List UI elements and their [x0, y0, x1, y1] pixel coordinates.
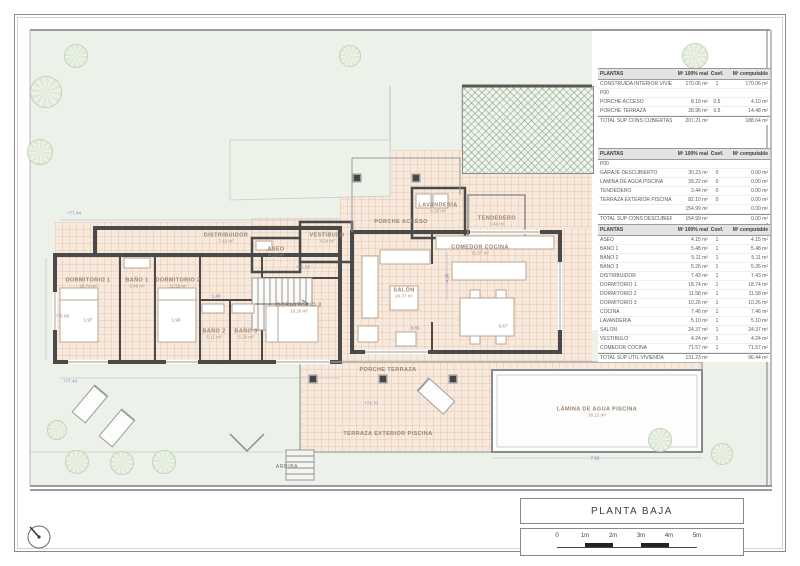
- row-name: TERRAZA EXTERIOR PISCINA: [600, 197, 672, 203]
- table-title: PLANTAS: [600, 71, 672, 77]
- tree-icon: [648, 428, 672, 452]
- row-name: ASEO: [600, 237, 672, 243]
- row-comp: 0.00 m²: [726, 206, 768, 212]
- row-coef: 1: [708, 237, 726, 243]
- col-header-coef: Coef.: [708, 227, 726, 233]
- room-area: 18.74 m²: [65, 284, 110, 289]
- row-comp: 7.43 m²: [726, 273, 768, 279]
- row-coef: 1: [708, 246, 726, 252]
- room-area: 4.15 m²: [267, 253, 284, 258]
- row-coef: [708, 355, 726, 361]
- row-comp: 5.26 m²: [726, 264, 768, 270]
- tree-icon: [711, 443, 733, 465]
- row-real: 82.10 m²: [672, 197, 708, 203]
- row-comp: 0.00 m²: [726, 216, 768, 222]
- table-row: DORMITORIO 3 10.26 m² 1 10.26 m²: [598, 299, 770, 308]
- col-header-real: M² 100% real: [672, 151, 708, 157]
- row-real: 5.10 m²: [672, 318, 708, 324]
- row-comp: 170.06 m²: [726, 81, 768, 87]
- row-name: TOTAL SUP ÚTIL VIVIENDA: [600, 355, 672, 361]
- hatched-planting-area: [462, 86, 594, 174]
- table-row: VESTÍBULO 4.24 m² 1 4.24 m²: [598, 335, 770, 344]
- row-name: COMEDOR COCINA: [600, 345, 672, 351]
- drawing-sheet: DORMITORIO 1 18.74 m² BAÑO 1 5.48 m² DOR…: [0, 0, 800, 566]
- scale-tick-label: 1m: [571, 533, 599, 539]
- paved-terrace-pool: [300, 362, 702, 452]
- tree-icon: [110, 451, 134, 475]
- room-area: 5.10 m²: [418, 209, 457, 214]
- table-row: BAÑO 3 5.26 m² 1 5.26 m²: [598, 263, 770, 272]
- table-row: BAÑO 2 5.11 m² 1 5.11 m²: [598, 254, 770, 263]
- room-name: PORCHE TERRAZA: [360, 367, 417, 373]
- annotation-text: 1.90: [172, 318, 181, 323]
- row-real: 10.26 m²: [672, 300, 708, 306]
- room-label: LÁMINA DE AGUA PISCINA 39.22 m²: [557, 407, 637, 418]
- row-comp: 11.58 m²: [726, 291, 768, 297]
- annotation-text: 7.82: [591, 456, 600, 461]
- row-name: PORCHE TERRAZA: [600, 108, 672, 114]
- row-real: 170.06 m²: [672, 81, 708, 87]
- room-area: 10.26 m²: [276, 309, 321, 314]
- room-area: 5.48 m²: [125, 284, 148, 289]
- row-name: COCINA: [600, 309, 672, 315]
- row-comp: 7.46 m²: [726, 309, 768, 315]
- row-real: 24.37 m²: [672, 327, 708, 333]
- room-area: 3.44 m²: [478, 222, 516, 227]
- row-name: DORMITORIO 2: [600, 291, 672, 297]
- area-table-cubiertas: PLANTAS M² 100% real Coef. M² computable…: [598, 68, 770, 125]
- row-name: BAÑO 2: [600, 255, 672, 261]
- scale-bar: [557, 543, 697, 548]
- area-table-descubiertas: PLANTAS M² 100% real Coef. M² computable…: [598, 148, 770, 223]
- row-name: TOTAL SUP CONS CUBIERTAS: [600, 118, 672, 124]
- row-name: DORMITORIO 1: [600, 282, 672, 288]
- row-coef: [708, 90, 726, 96]
- room-label: SALÓN 24.37 m²: [393, 288, 414, 299]
- row-coef: [708, 206, 726, 212]
- room-label: VESTÍBULO 4.24 m²: [309, 233, 344, 244]
- table-row: COCINA 7.46 m² 1 7.46 m²: [598, 308, 770, 317]
- row-coef: 1: [708, 327, 726, 333]
- row-real: [672, 161, 708, 167]
- row-name: P00: [600, 161, 672, 167]
- table-row: PORCHE TERRAZA 28.96 m² 0.5 14.48 m²: [598, 107, 770, 116]
- table-row: COMEDOR COCINA 71.57 m² 1 71.57 m²: [598, 344, 770, 353]
- row-name: LÁMINA DE AGUA PISCINA: [600, 179, 672, 185]
- row-coef: 0: [708, 170, 726, 176]
- room-label: LAVANDERÍA 5.10 m²: [418, 203, 457, 214]
- scale-tick-label: 2m: [599, 533, 627, 539]
- porch-column: [309, 375, 318, 384]
- tree-icon: [65, 450, 89, 474]
- row-name: BAÑO 3: [600, 264, 672, 270]
- table-header: PLANTAS M² 100% real Coef. M² computable: [598, 224, 770, 236]
- row-real: 154.99 m²: [672, 216, 708, 222]
- row-coef: 0: [708, 188, 726, 194]
- row-name: DISTRIBUIDOR: [600, 273, 672, 279]
- row-coef: 1: [708, 81, 726, 87]
- row-real: 7.43 m²: [672, 273, 708, 279]
- row-comp: 0.00 m²: [726, 179, 768, 185]
- row-name: CONSTRUIDA INTERIOR VIVIENDA: [600, 81, 672, 87]
- room-area: 4.24 m²: [309, 239, 344, 244]
- table-row: TOTAL SUP CONS DESCUBIERTAS 154.99 m² 0.…: [598, 214, 770, 223]
- table-row: P00: [598, 89, 770, 98]
- row-comp: 4.24 m²: [726, 336, 768, 342]
- porch-column: [353, 174, 362, 183]
- tree-icon: [27, 139, 53, 165]
- row-coef: 0.5: [708, 99, 726, 105]
- room-label: BAÑO 3 5.26 m²: [234, 329, 257, 340]
- row-coef: 1: [708, 282, 726, 288]
- annotation-text: +77.44: [67, 211, 81, 216]
- col-header-coef: Coef.: [708, 71, 726, 77]
- annotation-text: +71.58: [296, 265, 310, 270]
- table-row: CONSTRUIDA INTERIOR VIVIENDA 170.06 m² 1…: [598, 80, 770, 89]
- table-row: TOTAL SUP CONS CUBIERTAS 207.21 m² 188.6…: [598, 116, 770, 125]
- porch-column: [412, 174, 421, 183]
- room-area: 5.11 m²: [202, 335, 225, 340]
- table-rows: CONSTRUIDA INTERIOR VIVIENDA 170.06 m² 1…: [598, 80, 770, 125]
- row-comp: 0.00 m²: [726, 197, 768, 203]
- room-label: COMEDOR COCINA 71.57 m²: [451, 245, 509, 256]
- table-row: SALÓN 24.37 m² 1 24.37 m²: [598, 326, 770, 335]
- room-area: 11.58 m²: [155, 284, 200, 289]
- row-coef: 0.5: [708, 108, 726, 114]
- room-name: TERRAZA EXTERIOR PISCINA: [343, 431, 432, 437]
- room-label: DORMITORIO 1 18.74 m²: [65, 278, 110, 289]
- room-area: 7.43 m²: [204, 239, 249, 244]
- row-comp: 5.10 m²: [726, 318, 768, 324]
- scale-tick-label: 0: [543, 533, 571, 539]
- row-coef: [708, 161, 726, 167]
- row-comp: 188.64 m²: [726, 118, 768, 124]
- row-real: 131.23 m²: [672, 355, 708, 361]
- row-name: TOTAL SUP CONS DESCUBIERTAS: [600, 216, 672, 222]
- col-header-comp: M² computable: [726, 151, 768, 157]
- row-name: P00: [600, 90, 672, 96]
- row-coef: 1: [708, 336, 726, 342]
- row-coef: 1: [708, 264, 726, 270]
- table-header: PLANTAS M² 100% real Coef. M² computable: [598, 148, 770, 160]
- table-row: TENDEDERO 3.44 m² 0 0.00 m²: [598, 187, 770, 196]
- porch-column: [379, 375, 388, 384]
- row-comp: 4.15 m²: [726, 237, 768, 243]
- annotation-text: 0.86: [411, 326, 420, 331]
- scale-tick-label: 3m: [627, 533, 655, 539]
- row-real: 11.58 m²: [672, 291, 708, 297]
- room-label: TERRAZA EXTERIOR PISCINA: [343, 431, 432, 437]
- row-real: 7.46 m²: [672, 309, 708, 315]
- room-area: 39.22 m²: [557, 413, 637, 418]
- row-coef: [708, 118, 726, 124]
- row-comp: 96.44 m²: [726, 355, 768, 361]
- row-real: 30.23 m²: [672, 170, 708, 176]
- row-comp: 14.48 m²: [726, 108, 768, 114]
- room-label: DORMITORIO 3 10.26 m²: [276, 303, 321, 314]
- row-comp: 10.26 m²: [726, 300, 768, 306]
- room-label: BAÑO 1 5.48 m²: [125, 278, 148, 289]
- row-coef: 1: [708, 300, 726, 306]
- annotation-text: 6.67: [499, 324, 508, 329]
- table-row: GARAJE DESCUBIERTO 30.23 m² 0 0.00 m²: [598, 169, 770, 178]
- table-row: LÁMINA DE AGUA PISCINA 39.22 m² 0 0.00 m…: [598, 178, 770, 187]
- area-table-util: PLANTAS M² 100% real Coef. M² computable…: [598, 224, 770, 362]
- row-coef: [708, 216, 726, 222]
- row-comp: 18.74 m²: [726, 282, 768, 288]
- row-real: 4.24 m²: [672, 336, 708, 342]
- row-comp: 71.57 m²: [726, 345, 768, 351]
- annotation-text: +70.98: [55, 314, 69, 319]
- table-row: LAVANDERÍA 5.10 m² 1 5.10 m²: [598, 317, 770, 326]
- scale-tick-label: 5m: [683, 533, 711, 539]
- row-real: 39.22 m²: [672, 179, 708, 185]
- tree-icon: [30, 76, 62, 108]
- row-coef: 1: [708, 318, 726, 324]
- table-header: PLANTAS M² 100% real Coef. M² computable: [598, 68, 770, 80]
- table-row: BAÑO 1 5.48 m² 1 5.48 m²: [598, 245, 770, 254]
- col-header-real: M² 100% real: [672, 71, 708, 77]
- row-coef: 1: [708, 345, 726, 351]
- scale-bar-box: 01m2m3m4m5m: [520, 528, 744, 556]
- row-real: 5.48 m²: [672, 246, 708, 252]
- row-real: 18.74 m²: [672, 282, 708, 288]
- table-rows: P00 GARAJE DESCUBIERTO 30.23 m² 0 0.00 m…: [598, 160, 770, 223]
- annotation-text: 4.38: [445, 274, 450, 283]
- row-coef: 0: [708, 179, 726, 185]
- room-area: 71.57 m²: [451, 251, 509, 256]
- annotation-text: 1.97: [84, 318, 93, 323]
- tree-icon: [682, 43, 708, 69]
- row-name: [600, 206, 672, 212]
- row-real: 5.11 m²: [672, 255, 708, 261]
- row-real: 28.96 m²: [672, 108, 708, 114]
- table-row: PORCHE ACCESO 8.19 m² 0.5 4.10 m²: [598, 98, 770, 107]
- row-coef: 1: [708, 309, 726, 315]
- row-comp: [726, 161, 768, 167]
- col-header-coef: Coef.: [708, 151, 726, 157]
- tree-icon: [64, 44, 88, 68]
- table-rows: ASEO 4.15 m² 1 4.15 m² BAÑO 1 5.48 m² 1 …: [598, 236, 770, 362]
- row-name: BAÑO 1: [600, 246, 672, 252]
- table-row: TOTAL SUP ÚTIL VIVIENDA 131.23 m² 96.44 …: [598, 353, 770, 362]
- row-real: 71.57 m²: [672, 345, 708, 351]
- col-header-comp: M² computable: [726, 71, 768, 77]
- annotation-text: +74.70: [364, 401, 378, 406]
- plan-title-box: PLANTA BAJA: [520, 498, 744, 524]
- row-name: LAVANDERÍA: [600, 318, 672, 324]
- tree-icon: [47, 420, 67, 440]
- room-label: BAÑO 2 5.11 m²: [202, 329, 225, 340]
- porch-column: [449, 375, 458, 384]
- table-title: PLANTAS: [600, 151, 672, 157]
- row-real: 5.26 m²: [672, 264, 708, 270]
- col-header-comp: M² computable: [726, 227, 768, 233]
- scale-ticks: 01m2m3m4m5m: [543, 533, 711, 539]
- room-label: DORMITORIO 2 11.58 m²: [155, 278, 200, 289]
- row-comp: 5.11 m²: [726, 255, 768, 261]
- room-label: ASEO 4.15 m²: [267, 247, 284, 258]
- row-name: GARAJE DESCUBIERTO: [600, 170, 672, 176]
- room-area: 24.37 m²: [393, 294, 414, 299]
- annotation-text: ARRIBA: [276, 464, 298, 470]
- row-real: 3.44 m²: [672, 188, 708, 194]
- row-real: 8.19 m²: [672, 99, 708, 105]
- row-comp: [726, 90, 768, 96]
- row-name: DORMITORIO 3: [600, 300, 672, 306]
- row-comp: 5.48 m²: [726, 246, 768, 252]
- room-name: PORCHE ACCESO: [374, 219, 428, 225]
- row-real: 207.21 m²: [672, 118, 708, 124]
- row-name: PORCHE ACCESO: [600, 99, 672, 105]
- row-coef: 1: [708, 273, 726, 279]
- tree-icon: [152, 450, 176, 474]
- scale-tick-label: 4m: [655, 533, 683, 539]
- room-label: PORCHE ACCESO: [374, 219, 428, 225]
- room-label: PORCHE TERRAZA: [360, 367, 417, 373]
- row-name: VESTÍBULO: [600, 336, 672, 342]
- row-comp: 0.00 m²: [726, 170, 768, 176]
- row-coef: 0: [708, 197, 726, 203]
- annotation-text: +77.44: [63, 379, 77, 384]
- row-real: 154.99 m²: [672, 206, 708, 212]
- table-row: DISTRIBUIDOR 7.43 m² 1 7.43 m²: [598, 272, 770, 281]
- annotation-text: 1.40: [212, 294, 221, 299]
- table-row: 154.99 m² 0.00 m²: [598, 205, 770, 214]
- room-label: TENDEDERO 3.44 m²: [478, 216, 516, 227]
- row-name: TENDEDERO: [600, 188, 672, 194]
- room-label: DISTRIBUIDOR 7.43 m²: [204, 233, 249, 244]
- table-title: PLANTAS: [600, 227, 672, 233]
- table-row: P00: [598, 160, 770, 169]
- table-row: DORMITORIO 2 11.58 m² 1 11.58 m²: [598, 290, 770, 299]
- row-real: [672, 90, 708, 96]
- row-comp: 0.00 m²: [726, 188, 768, 194]
- row-name: SALÓN: [600, 327, 672, 333]
- table-row: TERRAZA EXTERIOR PISCINA 82.10 m² 0 0.00…: [598, 196, 770, 205]
- tree-icon: [339, 45, 361, 67]
- row-comp: 24.37 m²: [726, 327, 768, 333]
- row-coef: 1: [708, 255, 726, 261]
- col-header-real: M² 100% real: [672, 227, 708, 233]
- row-comp: 4.10 m²: [726, 99, 768, 105]
- table-row: ASEO 4.15 m² 1 4.15 m²: [598, 236, 770, 245]
- plan-title: PLANTA BAJA: [591, 506, 673, 517]
- room-area: 5.26 m²: [234, 335, 257, 340]
- table-row: DORMITORIO 1 18.74 m² 1 18.74 m²: [598, 281, 770, 290]
- row-coef: 1: [708, 291, 726, 297]
- row-real: 4.15 m²: [672, 237, 708, 243]
